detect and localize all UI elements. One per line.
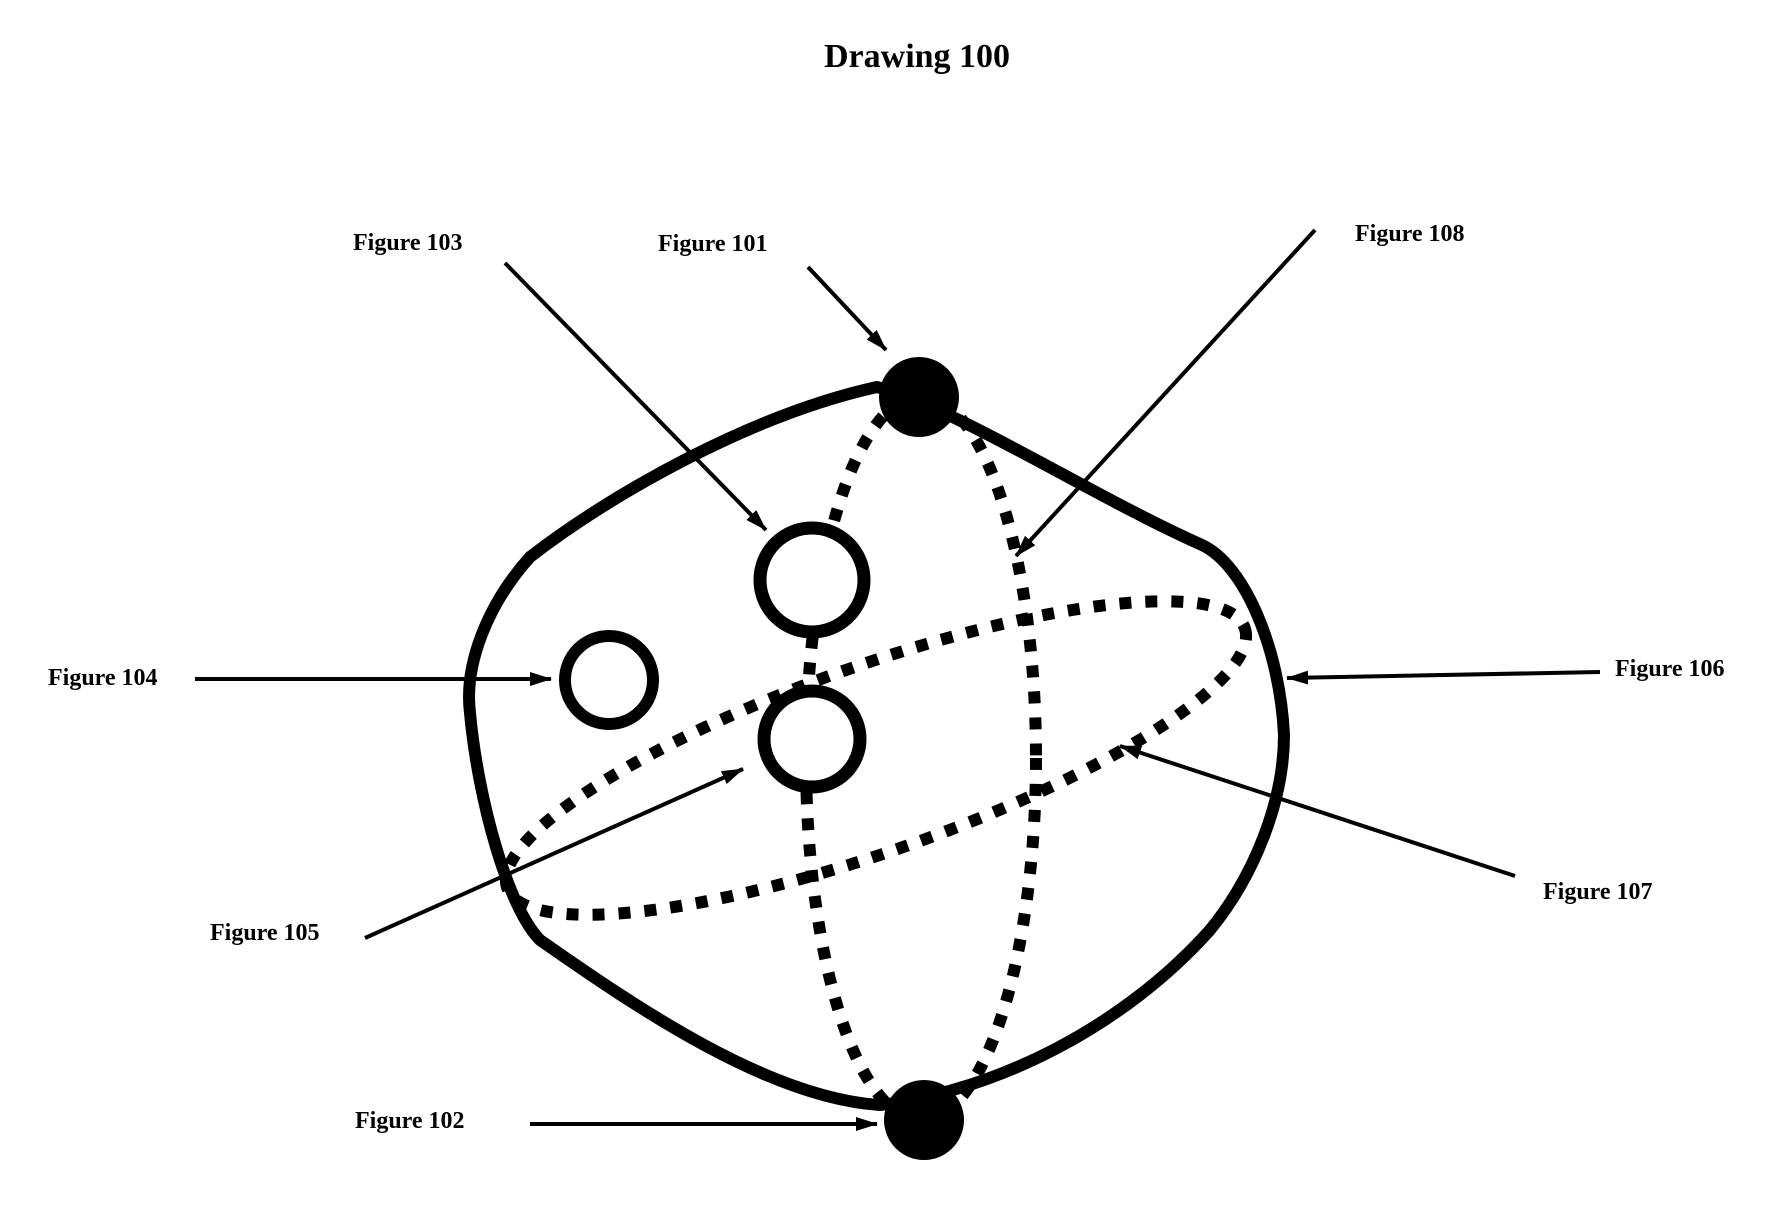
figure-101-arrow [808,267,886,350]
small-circle-104 [565,636,653,724]
label-figure-106: Figure 106 [1615,656,1725,682]
label-figure-101: Figure 101 [658,231,768,257]
top-pole-dot [879,357,959,437]
sphere-diagram [0,0,1775,1220]
bottom-pole-dot [884,1080,964,1160]
figure-105-arrow [365,769,743,938]
label-figure-108: Figure 108 [1355,221,1465,247]
drawing-page: Drawing 100 Figure 103 Figure 101 Figure… [0,0,1775,1220]
small-circle-103 [760,528,864,632]
label-figure-107: Figure 107 [1543,879,1653,905]
figure-107-arrow [1120,746,1515,876]
label-figure-102: Figure 102 [355,1108,465,1134]
figure-106-arrow [1287,672,1600,678]
figure-108-arrow [1016,230,1315,556]
label-figure-103: Figure 103 [353,230,463,256]
label-figure-105: Figure 105 [210,920,320,946]
label-figure-104: Figure 104 [48,665,158,691]
small-circle-105 [764,691,860,787]
page-title: Drawing 100 [824,38,1010,76]
sphere-outline [469,387,1284,1105]
